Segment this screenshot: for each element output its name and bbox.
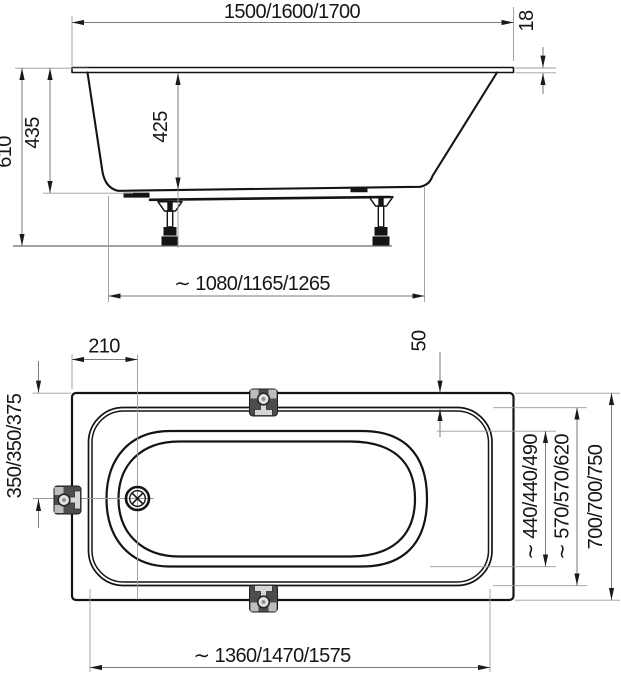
basin-floor-outline [119, 442, 416, 557]
dim-label-length-overall: 1500/1600/1700 [224, 1, 361, 23]
dim-rim-width: 50 [409, 330, 441, 437]
drawing-canvas: 1500/1600/1700 18 610 435 425 [0, 0, 621, 678]
dim-label-rim-thickness: 18 [516, 10, 538, 32]
dim-basin-width: ∼ 440/440/490 [430, 431, 556, 567]
dim-label-width-overall: 700/700/750 [585, 444, 607, 549]
tub-outer-edge [72, 393, 514, 600]
leg-right-icon [369, 197, 393, 246]
support-frame-bar [150, 197, 390, 200]
dim-length-overall: 1500/1600/1700 [72, 1, 514, 66]
dim-depth-inner: 425 [150, 73, 178, 248]
top-view [33, 355, 514, 613]
dim-label-height-overall: 610 [0, 136, 16, 168]
dim-label-drain-offset: 210 [88, 336, 120, 358]
dim-height-body: 435 [22, 68, 133, 193]
dim-inner-rim-length: ∼ 1360/1470/1575 [90, 589, 490, 672]
dim-label-inner-rim-width: ∼ 570/570/620 [552, 434, 574, 560]
dim-label-basin-width: ∼ 440/440/490 [520, 434, 542, 560]
dim-label-rim-width: 50 [409, 330, 431, 352]
drain-icon [126, 487, 149, 510]
top-view-dimensions: 210 350/350/375 50 ∼ 440/440/490 ∼ 570/5… [4, 330, 620, 672]
side-view [13, 68, 514, 247]
mounting-bracket-top-icon [250, 389, 278, 416]
dim-label-inner-rim-length: ∼ 1360/1470/1575 [193, 645, 351, 667]
support-pad-right [351, 188, 368, 192]
basin-outline [107, 431, 428, 567]
dim-label-height-body: 435 [22, 117, 44, 149]
tub-shell-profile [88, 73, 498, 191]
dim-label-drain-from-edge: 350/350/375 [4, 393, 26, 498]
dim-rim-thickness: 18 [516, 10, 557, 94]
dim-label-base-length: ∼ 1080/1165/1265 [174, 273, 330, 295]
mounting-bracket-bottom-icon [250, 585, 278, 612]
tub-rim-profile [72, 68, 514, 73]
dim-height-overall: 610 [0, 68, 88, 246]
dim-drain-offset: 210 [72, 336, 138, 390]
dim-label-depth-inner: 425 [150, 111, 172, 143]
side-view-dimensions: 1500/1600/1700 18 610 435 425 [0, 1, 556, 302]
bathtub-technical-drawing: 1500/1600/1700 18 610 435 425 [0, 0, 621, 678]
mounting-bracket-left-icon [54, 486, 81, 514]
